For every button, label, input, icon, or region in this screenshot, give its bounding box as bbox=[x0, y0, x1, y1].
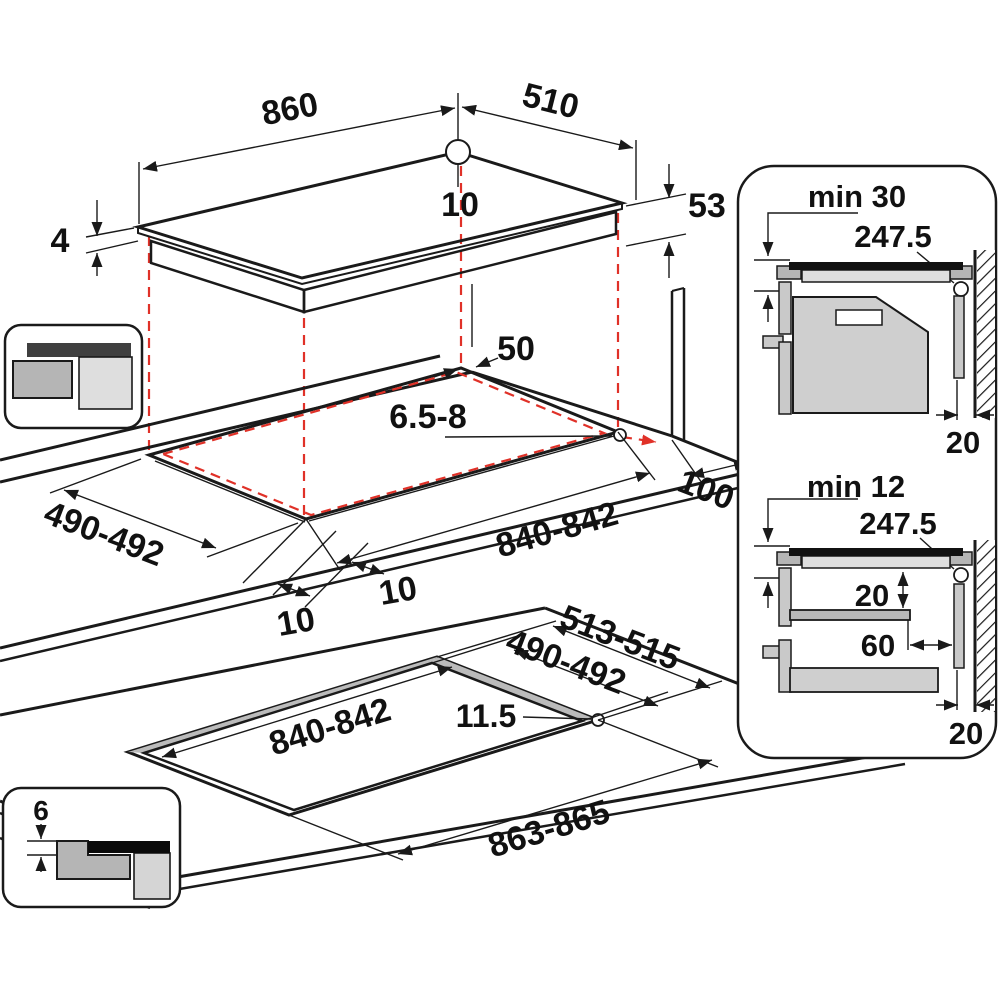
drawer-bottom-bar bbox=[790, 668, 938, 692]
cutout-width-label: 840-842 bbox=[492, 495, 622, 566]
wall-gap-drawer-label: 20 bbox=[949, 716, 983, 751]
glass-thickness-label: 4 bbox=[51, 222, 70, 260]
dim-overhangs: 10 10 bbox=[243, 519, 420, 644]
dim-cutout-depth: 490-492 bbox=[39, 459, 298, 574]
cable-circle-oven bbox=[954, 282, 968, 296]
oven-vent-slot bbox=[836, 310, 882, 325]
side-view-panel: min 30 247.5 20 bbox=[738, 166, 996, 758]
icon-worktop-box bbox=[79, 357, 132, 409]
installation-diagram: 860 510 10 53 4 bbox=[0, 0, 1000, 1000]
overhang-left-label: 10 bbox=[274, 600, 318, 644]
step-radius-label: 11.5 bbox=[456, 698, 517, 734]
projection-lines bbox=[149, 166, 618, 516]
dim-body-height: 53 bbox=[626, 164, 726, 278]
hob-top-view: 860 510 10 53 4 bbox=[51, 76, 726, 516]
min-30-label: min 30 bbox=[808, 179, 906, 214]
cable-offset-label: 10 bbox=[441, 186, 479, 224]
hob-body-bar bbox=[802, 270, 950, 282]
flush-install-icon: 6 bbox=[3, 788, 180, 907]
hob-depth-label: 510 bbox=[519, 76, 583, 127]
flush-outer-width-label: 863-865 bbox=[484, 793, 614, 866]
hob-glass-bar-2 bbox=[789, 548, 963, 556]
recess-depth-label: 6 bbox=[33, 795, 49, 826]
side-clearance-label: 100 bbox=[673, 462, 740, 518]
shelf-to-wall-label: 60 bbox=[861, 628, 895, 663]
worktop-cutout-hole bbox=[149, 368, 618, 519]
dim-flush-inner-width: 840-842 bbox=[162, 667, 452, 763]
wall-hatch-lower bbox=[977, 540, 995, 712]
dim-rear-clearance: 50 bbox=[434, 284, 535, 377]
dim-hob-width: 860 bbox=[139, 85, 455, 224]
junction-box-bar-2 bbox=[954, 584, 964, 668]
cable-position-oven-label: 247.5 bbox=[854, 219, 932, 254]
cable-circle-drawer bbox=[954, 568, 968, 582]
hob-glass-bar bbox=[789, 262, 963, 270]
overhang-right-label: 10 bbox=[376, 569, 420, 613]
diagram-canvas: 860 510 10 53 4 bbox=[0, 0, 1000, 1000]
cable-entry-circle bbox=[446, 140, 470, 164]
wall-gap-oven-label: 20 bbox=[946, 425, 980, 460]
cable-position-drawer-label: 247.5 bbox=[859, 506, 937, 541]
body-height-label: 53 bbox=[688, 187, 726, 225]
shelf-bar bbox=[790, 610, 910, 620]
junction-box-bar bbox=[954, 296, 964, 378]
hob-width-label: 860 bbox=[258, 85, 321, 133]
icon-hob-body bbox=[134, 853, 170, 899]
flush-inner-width-label: 840-842 bbox=[265, 691, 395, 764]
hob-body-bar-2 bbox=[802, 556, 950, 568]
wall-hatch-upper bbox=[977, 250, 995, 418]
icon-flush-glass-bar bbox=[88, 841, 170, 853]
corner-radius-label: 6.5-8 bbox=[389, 398, 467, 436]
icon-hob-bar bbox=[27, 343, 131, 357]
dim-glass-thickness: 4 bbox=[51, 200, 138, 276]
overlap-install-icon bbox=[5, 325, 142, 428]
rear-clearance-label: 50 bbox=[497, 330, 535, 368]
shelf-gap-label: 20 bbox=[855, 578, 889, 613]
icon-cabinet-box bbox=[13, 361, 72, 398]
